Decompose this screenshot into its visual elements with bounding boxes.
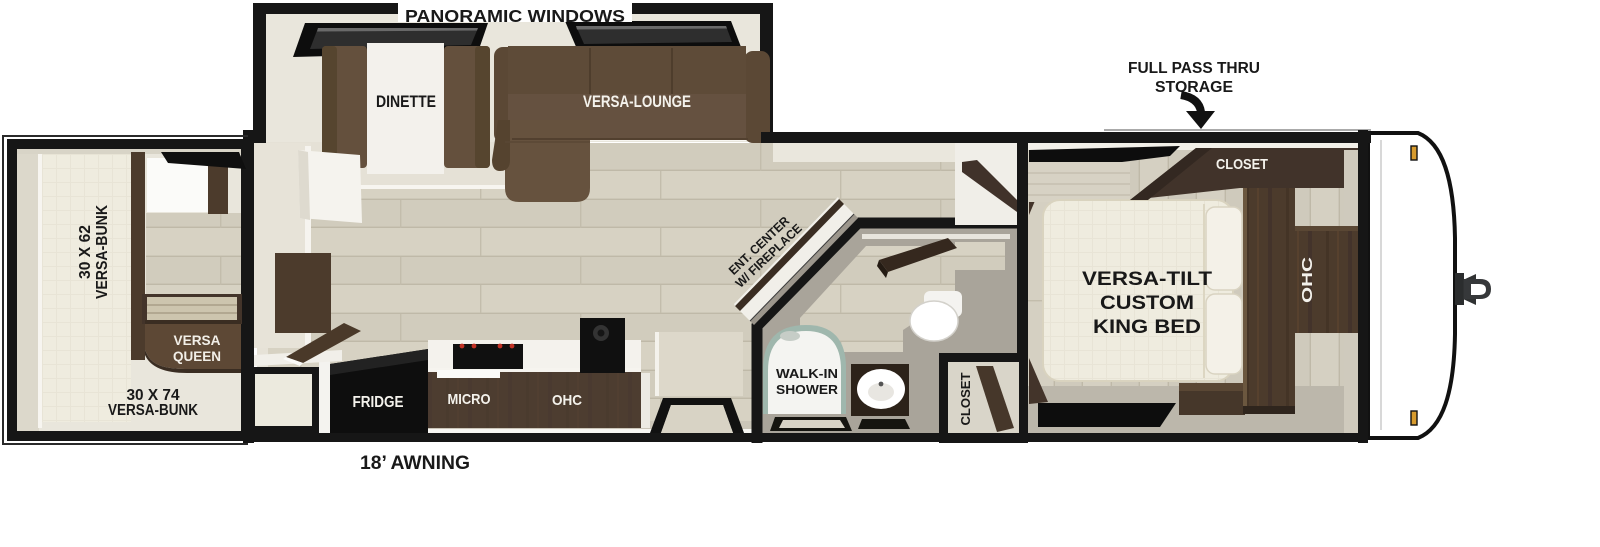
svg-text:OHC: OHC xyxy=(552,392,582,409)
svg-text:DINETTE: DINETTE xyxy=(376,93,436,111)
svg-text:PANORAMIC WINDOWS: PANORAMIC WINDOWS xyxy=(405,6,625,26)
svg-text:SHOWER: SHOWER xyxy=(776,382,839,397)
svg-text:18’ AWNING: 18’ AWNING xyxy=(360,453,470,474)
svg-text:VERSA-BUNK: VERSA-BUNK xyxy=(94,204,111,299)
svg-text:30 X 62: 30 X 62 xyxy=(77,225,94,279)
svg-text:OHC: OHC xyxy=(1299,257,1316,303)
svg-text:FRIDGE: FRIDGE xyxy=(353,394,404,411)
svg-text:CUSTOM: CUSTOM xyxy=(1100,292,1194,314)
svg-text:QUEEN: QUEEN xyxy=(173,348,221,364)
svg-text:CLOSET: CLOSET xyxy=(1216,156,1268,173)
svg-text:VERSA: VERSA xyxy=(174,332,221,348)
svg-text:FULL PASS THRU: FULL PASS THRU xyxy=(1128,60,1260,77)
svg-text:VERSA-TILT: VERSA-TILT xyxy=(1082,268,1212,290)
svg-text:WALK-IN: WALK-IN xyxy=(776,366,838,381)
svg-text:VERSA-BUNK: VERSA-BUNK xyxy=(108,402,199,419)
svg-text:KING BED: KING BED xyxy=(1093,316,1201,338)
svg-text:VERSA-LOUNGE: VERSA-LOUNGE xyxy=(583,93,691,111)
svg-text:CLOSET: CLOSET xyxy=(958,372,973,425)
svg-text:MICRO: MICRO xyxy=(448,391,491,408)
svg-text:STORAGE: STORAGE xyxy=(1155,79,1233,96)
